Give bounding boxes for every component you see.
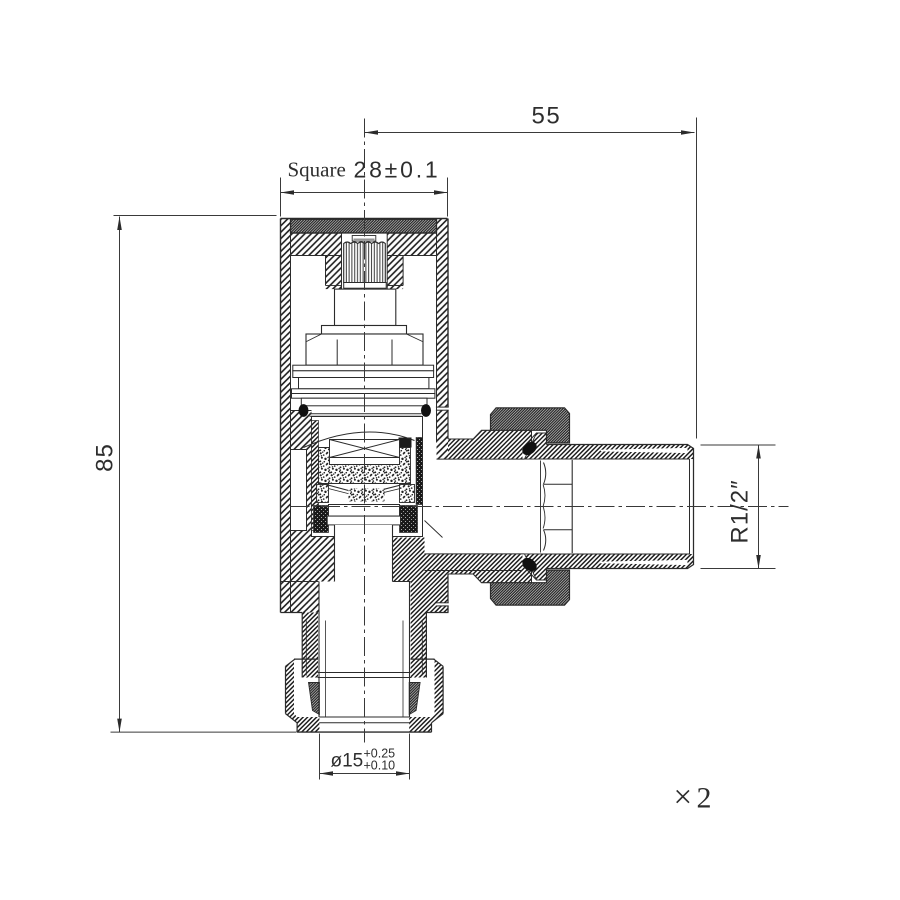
svg-text:×: ×	[674, 780, 693, 816]
svg-text:28±0.1: 28±0.1	[354, 157, 441, 183]
svg-text:Square: Square	[288, 158, 346, 182]
svg-text:55: 55	[532, 103, 562, 130]
svg-text:ø15: ø15	[331, 751, 364, 772]
svg-text:+0.10: +0.10	[364, 759, 396, 773]
svg-text:R1/2″: R1/2″	[727, 479, 754, 543]
svg-text:2: 2	[697, 782, 712, 815]
svg-text:85: 85	[92, 443, 119, 472]
